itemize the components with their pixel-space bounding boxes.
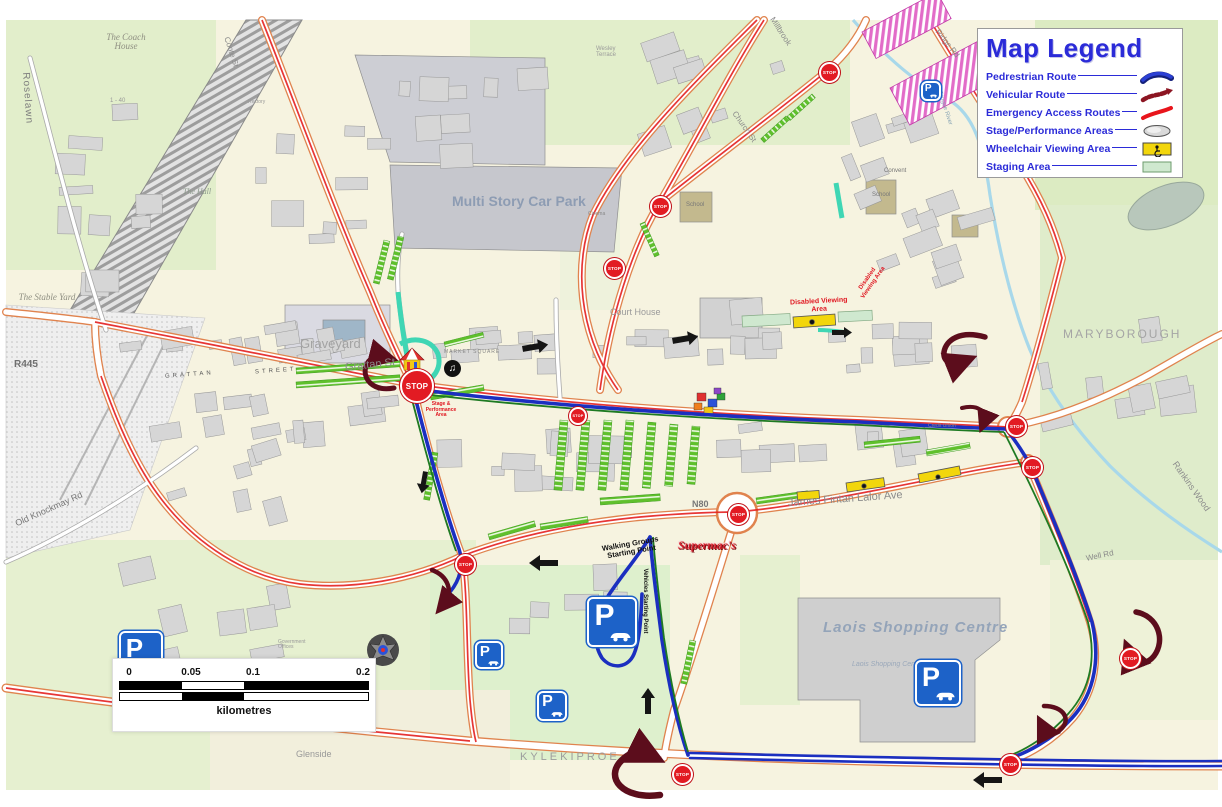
scale-ticks: 0 0.05 0.1 0.2 (119, 665, 369, 681)
legend-label: Pedrestrian Route (986, 71, 1076, 83)
car-icon (487, 659, 500, 666)
annotation-stage-performing: Stage & Performance Area (422, 402, 460, 419)
car-icon (550, 710, 564, 717)
supermacs-logo: Supermac's (678, 538, 736, 553)
stop-sign: STOP (1006, 416, 1027, 437)
staging-area-icon (1140, 159, 1174, 175)
map-legend: Map Legend Pedrestrian Route Vehicular R… (977, 28, 1183, 178)
stop-sign: STOP (400, 369, 434, 403)
annotation-disabled-viewing-1: Disabled Viewing Area (788, 296, 851, 315)
scale-tick: 0.2 (356, 667, 370, 678)
stop-sign: STOP (569, 407, 587, 425)
car-icon (934, 689, 957, 701)
car-icon (608, 629, 633, 642)
scale-bar-row-2 (119, 692, 369, 701)
vehicular-route-icon (1140, 87, 1174, 103)
legend-item-staging: Staging Area (986, 158, 1174, 176)
scale-bar: 0 0.05 0.1 0.2 kilometres (112, 658, 376, 732)
car-icon (929, 93, 938, 98)
scale-unit: kilometres (113, 705, 375, 717)
stop-sign: STOP (650, 196, 671, 217)
legend-item-emergency: Emergency Access Routes (986, 104, 1174, 122)
legend-item-pedestrian: Pedrestrian Route (986, 68, 1174, 86)
stop-sign: STOP (672, 764, 693, 785)
stop-sign: STOP (1120, 648, 1141, 669)
scale-bar-row-1 (119, 681, 369, 690)
parking-icon: P (915, 660, 961, 706)
legend-leader (1112, 147, 1137, 148)
pedestrian-route-icon (1140, 69, 1174, 85)
legend-leader (1122, 111, 1137, 112)
legend-leader (1078, 75, 1137, 76)
parking-icon: P (587, 597, 637, 647)
parking-icon: P (537, 691, 567, 721)
parking-letter: P (595, 599, 615, 633)
annotation-vehicle-start: Vehicles Starting Point (641, 566, 648, 636)
legend-label: Staging Area (986, 161, 1050, 173)
legend-label: Emergency Access Routes (986, 107, 1120, 119)
legend-item-vehicular: Vehicular Route (986, 86, 1174, 104)
stop-sign: STOP (455, 554, 476, 575)
wheelchair-area-icon (1140, 141, 1174, 157)
parking-letter: P (542, 693, 553, 711)
scale-tick: 0.05 (181, 667, 200, 678)
scale-tick: 0.1 (246, 667, 260, 678)
legend-leader (1067, 93, 1137, 94)
stop-sign: STOP (819, 62, 840, 83)
parking-letter: P (480, 643, 490, 660)
stop-sign: STOP (1022, 457, 1043, 478)
stop-sign: STOP (1000, 754, 1021, 775)
legend-item-wheelchair: Wheelchair Viewing Area (986, 140, 1174, 158)
scale-tick: 0 (126, 667, 132, 678)
stop-sign: STOP (728, 504, 749, 525)
legend-label: Vehicular Route (986, 89, 1065, 101)
legend-title: Map Legend (986, 33, 1174, 64)
parking-icon: P (475, 641, 503, 669)
legend-item-stage: Stage/Performance Areas (986, 122, 1174, 140)
legend-label: Wheelchair Viewing Area (986, 143, 1110, 155)
legend-leader (1115, 129, 1137, 130)
emergency-route-icon (1140, 105, 1174, 121)
stage-area-icon (1140, 123, 1174, 139)
legend-label: Stage/Performance Areas (986, 125, 1113, 137)
stop-sign: STOP (604, 258, 625, 279)
parking-letter: P (922, 662, 940, 693)
legend-leader (1052, 165, 1137, 166)
music-note-icon: ♫ (444, 360, 461, 377)
event-map-page: Roselawn The Coach House The Stable Yard… (0, 0, 1222, 807)
parking-icon: P (921, 81, 941, 101)
